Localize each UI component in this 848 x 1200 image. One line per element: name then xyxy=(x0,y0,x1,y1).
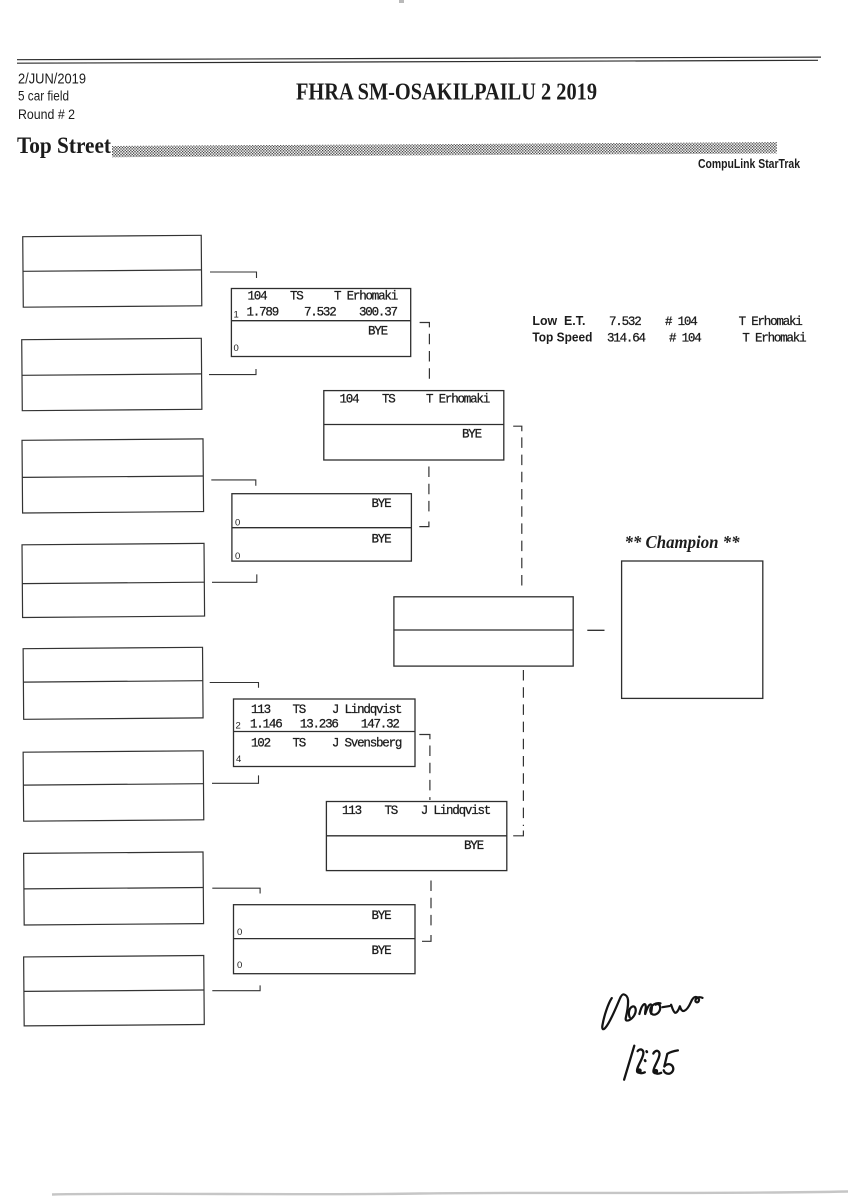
svg-text:147.32: 147.32 xyxy=(361,718,400,732)
svg-text:BYE: BYE xyxy=(464,839,484,853)
svg-text:BYE: BYE xyxy=(372,909,392,923)
svg-text:314.64: 314.64 xyxy=(607,332,646,346)
svg-text:T Erhomaki: T Erhomaki xyxy=(426,393,490,407)
svg-text:BYE: BYE xyxy=(372,497,392,511)
svg-text:BYE: BYE xyxy=(372,944,392,958)
svg-text:0: 0 xyxy=(235,551,240,562)
svg-text:104: 104 xyxy=(248,290,268,304)
svg-text:1.146: 1.146 xyxy=(250,718,282,732)
svg-text:T Erhomaki: T Erhomaki xyxy=(334,290,398,304)
svg-text:0: 0 xyxy=(237,960,242,971)
svg-text:FHRA SM-OSAKILPAILU 2 2019: FHRA SM-OSAKILPAILU 2 2019 xyxy=(296,79,597,105)
svg-text:Round # 2: Round # 2 xyxy=(18,106,75,122)
svg-text:0: 0 xyxy=(234,343,239,354)
svg-text:7.532: 7.532 xyxy=(609,315,641,329)
svg-text:** Champion **: ** Champion ** xyxy=(625,532,741,552)
svg-text:T Erhomaki: T Erhomaki xyxy=(739,315,803,329)
svg-text:113: 113 xyxy=(251,703,271,717)
svg-text:# 104: # 104 xyxy=(669,332,701,346)
svg-text:Top Street: Top Street xyxy=(17,133,111,158)
svg-text:102: 102 xyxy=(251,737,271,751)
svg-text:TS: TS xyxy=(293,737,306,751)
svg-text:1.789: 1.789 xyxy=(247,306,279,320)
svg-text:BYE: BYE xyxy=(368,325,388,339)
svg-text:4: 4 xyxy=(236,754,241,765)
svg-text:T Erhomaki: T Erhomaki xyxy=(742,332,806,346)
svg-text:7.532: 7.532 xyxy=(304,306,336,320)
svg-text:TS: TS xyxy=(385,804,398,818)
svg-text:104: 104 xyxy=(340,393,360,407)
svg-text:Low E.T.: Low E.T. xyxy=(532,314,585,328)
svg-text:1: 1 xyxy=(234,310,239,321)
svg-text:TS: TS xyxy=(290,290,303,304)
svg-text:5 car field: 5 car field xyxy=(18,89,69,104)
svg-text:113: 113 xyxy=(342,804,362,818)
svg-text:# 104: # 104 xyxy=(665,315,697,329)
svg-text:BYE: BYE xyxy=(462,427,482,441)
svg-text:2/JUN/2019: 2/JUN/2019 xyxy=(18,71,86,88)
svg-text:J Lindqvist: J Lindqvist xyxy=(421,804,491,818)
svg-text:CompuLink StarTrak: CompuLink StarTrak xyxy=(698,157,800,171)
svg-text:0: 0 xyxy=(235,518,240,529)
svg-text:TS: TS xyxy=(382,393,395,407)
svg-text:Top Speed: Top Speed xyxy=(532,331,592,345)
svg-text:300.37: 300.37 xyxy=(359,306,398,320)
svg-text:J Svensberg: J Svensberg xyxy=(332,737,402,751)
svg-text:J Lindqvist: J Lindqvist xyxy=(332,703,402,717)
svg-text:2: 2 xyxy=(236,721,241,732)
svg-text:BYE: BYE xyxy=(372,533,392,547)
svg-text:TS: TS xyxy=(293,703,306,717)
svg-text:0: 0 xyxy=(237,927,242,938)
svg-text:13.236: 13.236 xyxy=(300,718,339,732)
